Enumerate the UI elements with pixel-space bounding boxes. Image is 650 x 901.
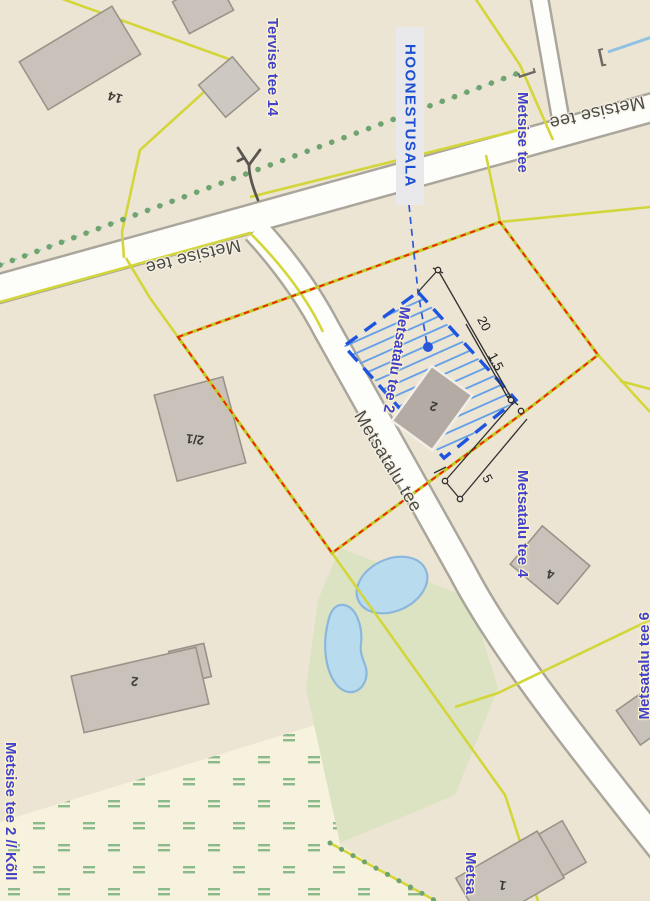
hoonestusala-label-box: HOONESTUSALA [396, 27, 424, 205]
map-canvas[interactable]: ] [ [0, 0, 650, 901]
leader-dot [423, 342, 433, 352]
map-graphics: ] [ [0, 0, 650, 901]
hoonestusala-label: HOONESTUSALA [402, 44, 419, 188]
